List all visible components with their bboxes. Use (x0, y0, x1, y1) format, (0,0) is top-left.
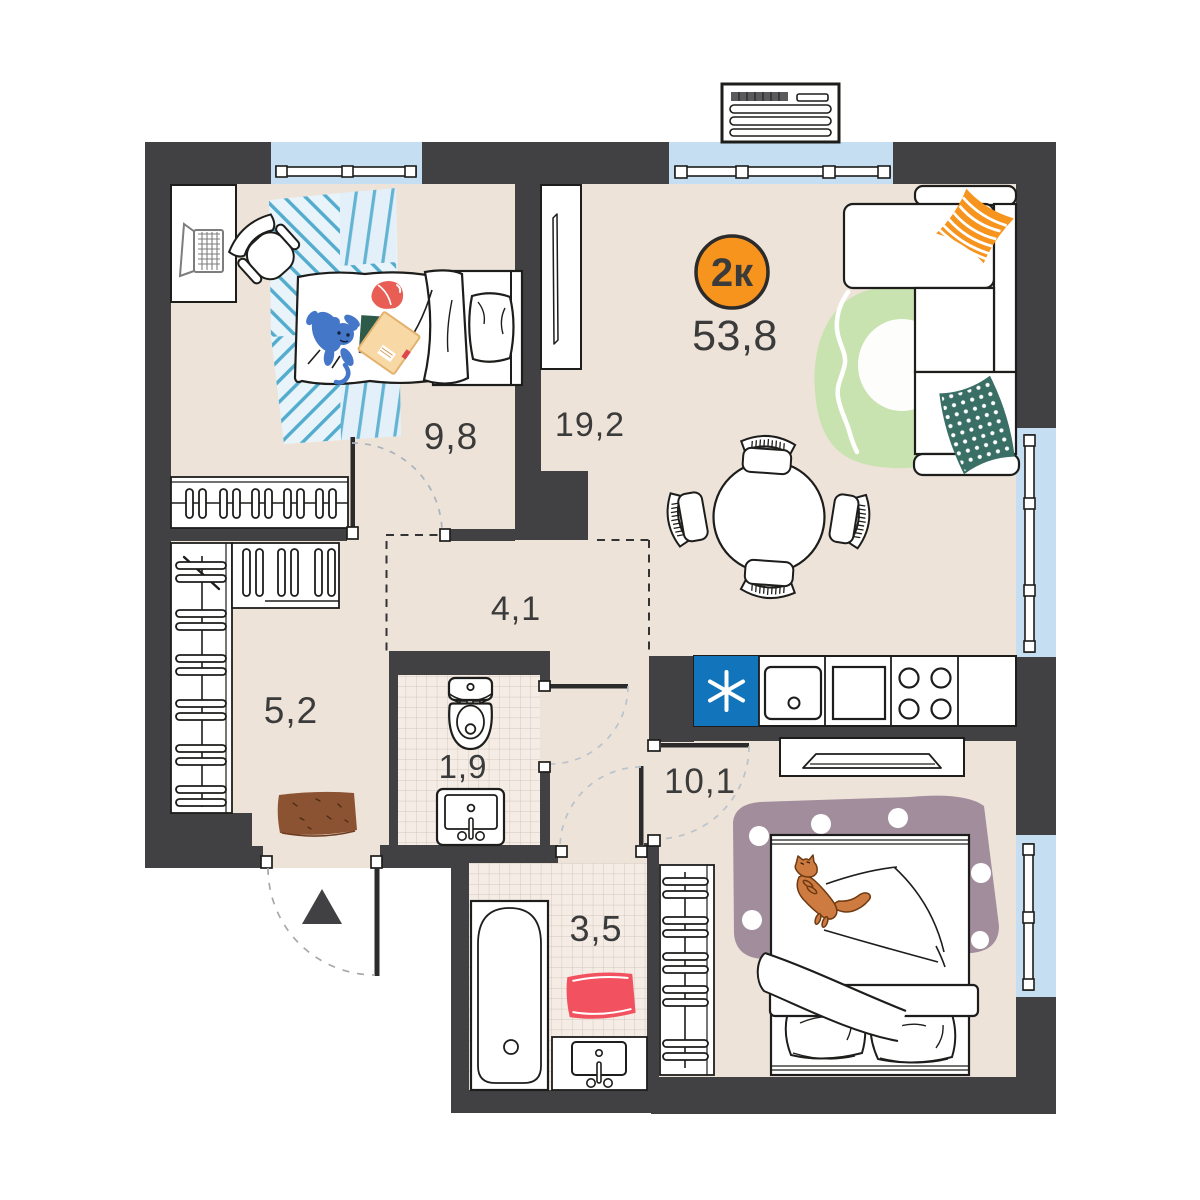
svg-text:5,2: 5,2 (264, 690, 318, 731)
svg-text:10,1: 10,1 (664, 762, 736, 801)
svg-text:4,1: 4,1 (491, 590, 541, 628)
svg-text:2к: 2к (711, 251, 754, 295)
svg-text:9,8: 9,8 (424, 416, 478, 457)
svg-text:3,5: 3,5 (569, 908, 622, 949)
svg-text:1,9: 1,9 (439, 748, 488, 785)
svg-text:19,2: 19,2 (555, 406, 625, 444)
svg-text:53,8: 53,8 (692, 312, 778, 360)
